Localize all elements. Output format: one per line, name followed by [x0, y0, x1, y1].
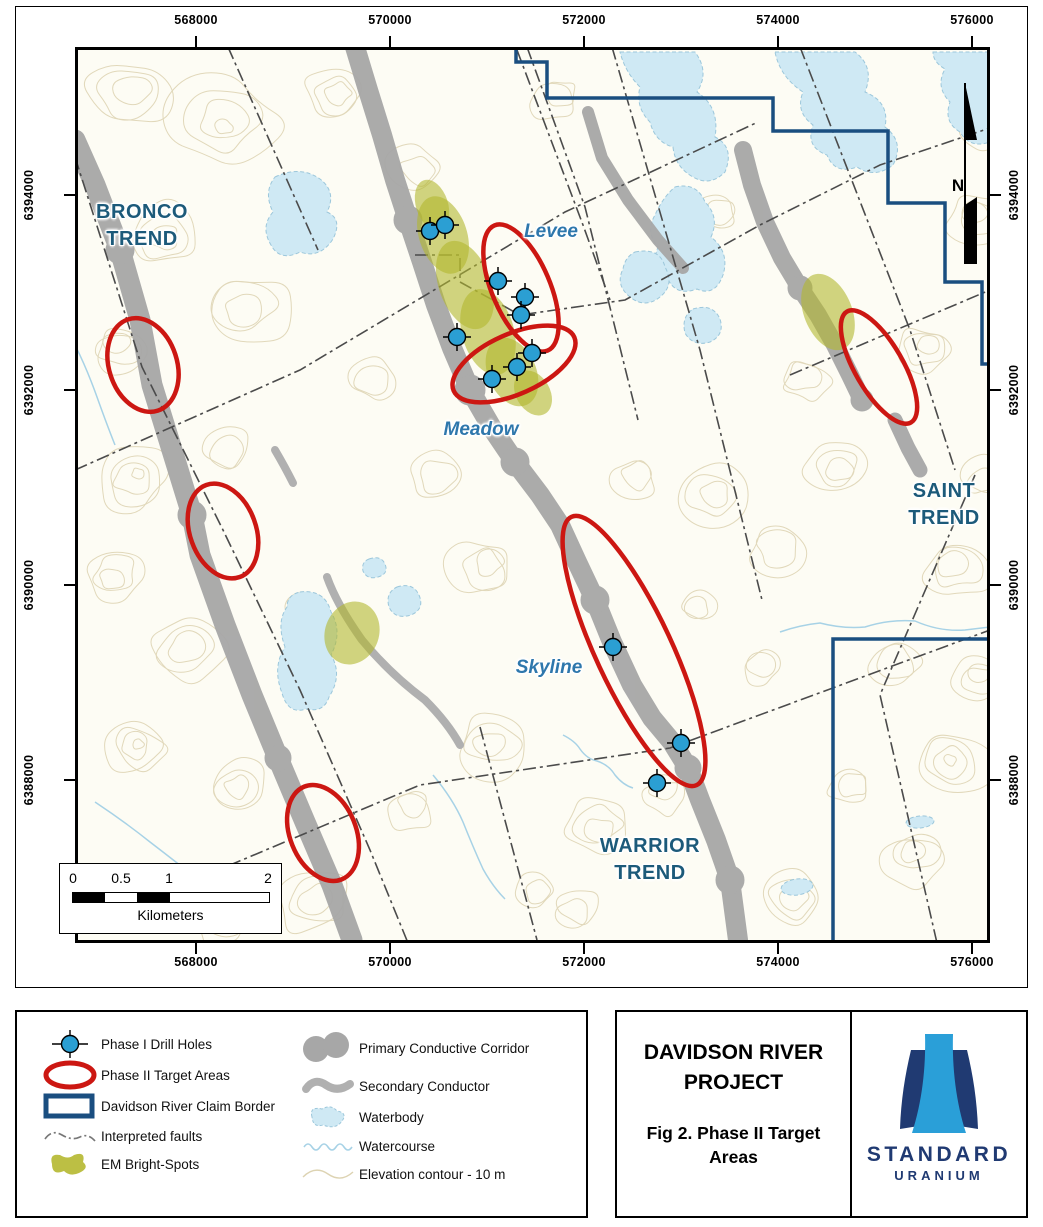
claim-border-icon	[39, 1091, 101, 1121]
skyline-label: Skyline	[516, 657, 583, 679]
axis-tick	[583, 943, 585, 954]
elevation-contour-icon	[297, 1162, 359, 1186]
legend-item: Secondary Conductor	[297, 1070, 490, 1102]
axis-tick	[777, 943, 779, 954]
north-arrow: N	[945, 83, 985, 269]
legend-item: EM Bright-Spots	[39, 1148, 199, 1180]
title-cell: DAVIDSON RIVER PROJECT Fig 2. Phase II T…	[617, 1012, 852, 1216]
figure-title: DAVIDSON RIVER PROJECT	[631, 1038, 836, 1099]
y-axis-label: 6394000	[1007, 170, 1021, 221]
x-axis-label: 574000	[756, 955, 800, 969]
scale-tick-1: 1	[165, 870, 173, 886]
em-bright-spot-icon	[39, 1148, 101, 1180]
primary-corridor-icon	[297, 1028, 359, 1068]
watercourse-icon	[297, 1134, 359, 1158]
bronco-trend-label: BRONCO TREND	[96, 199, 188, 253]
y-axis-label: 6388000	[1007, 755, 1021, 806]
levee-label: Levee	[524, 221, 578, 243]
map-canvas	[75, 47, 990, 943]
x-axis-label: 574000	[756, 13, 800, 27]
y-axis-label: 6388000	[22, 755, 36, 806]
figure-subtitle: Fig 2. Phase II Target Areas	[631, 1121, 836, 1170]
axis-tick	[389, 36, 391, 47]
axis-tick	[990, 584, 1001, 586]
legend-label: Phase II Target Areas	[101, 1068, 230, 1083]
logo-cell: STANDARD URANIUM	[852, 1012, 1026, 1216]
scale-bar-graphic	[72, 892, 270, 903]
axis-tick	[990, 194, 1001, 196]
legend-item: Waterbody	[297, 1101, 424, 1133]
saint-trend-line1: SAINT	[913, 480, 976, 502]
brand-name: STANDARD	[852, 1143, 1026, 1167]
x-axis-label: 576000	[950, 13, 994, 27]
axis-tick	[777, 36, 779, 47]
y-axis-label: 6392000	[22, 365, 36, 416]
drill-hole-icon	[39, 1028, 101, 1060]
scale-bar: 0 0.5 1 2 Kilometers	[59, 863, 282, 934]
target-ellipse-icon	[39, 1059, 101, 1091]
fault-line-icon	[39, 1123, 101, 1149]
x-axis-label: 572000	[562, 13, 606, 27]
legend-label: Primary Conductive Corridor	[359, 1041, 529, 1056]
x-axis-label: 570000	[368, 13, 412, 27]
saint-trend-label: SAINT TREND	[908, 478, 979, 532]
legend-label: Secondary Conductor	[359, 1079, 490, 1094]
y-axis-label: 6390000	[1007, 560, 1021, 611]
axis-tick	[64, 584, 75, 586]
legend-label: Davidson River Claim Border	[101, 1099, 275, 1114]
scale-tick-05: 0.5	[111, 870, 130, 886]
north-letter: N	[952, 176, 964, 195]
y-axis-label: 6390000	[22, 560, 36, 611]
warrior-trend-label: WARRIOR TREND	[600, 833, 700, 887]
y-axis-label: 6392000	[1007, 365, 1021, 416]
waterbody-icon	[297, 1101, 359, 1133]
north-arrow-head	[965, 83, 977, 140]
x-axis-label: 568000	[174, 955, 218, 969]
saint-trend-line2: TREND	[908, 507, 979, 529]
legend-label: EM Bright-Spots	[101, 1157, 199, 1172]
x-axis-label: 570000	[368, 955, 412, 969]
x-axis-label: 568000	[174, 13, 218, 27]
standard-uranium-logo-icon	[864, 1030, 1014, 1134]
legend-label: Phase I Drill Holes	[101, 1037, 212, 1052]
scale-tick-0: 0	[69, 870, 77, 886]
legend-label: Watercourse	[359, 1139, 435, 1154]
axis-tick	[195, 943, 197, 954]
meadow-label: Meadow	[444, 419, 519, 441]
legend-label: Elevation contour - 10 m	[359, 1167, 505, 1182]
secondary-conductor-icon	[297, 1071, 359, 1101]
axis-tick	[971, 36, 973, 47]
legend-label: Interpreted faults	[101, 1129, 202, 1144]
scale-unit: Kilometers	[60, 907, 281, 923]
bronco-trend-line1: BRONCO	[96, 201, 188, 223]
scale-tick-2: 2	[264, 870, 272, 886]
axis-tick	[389, 943, 391, 954]
bronco-trend-line2: TREND	[106, 228, 177, 250]
x-axis-label: 572000	[562, 955, 606, 969]
brand-subname: URANIUM	[852, 1168, 1026, 1183]
title-block: DAVIDSON RIVER PROJECT Fig 2. Phase II T…	[615, 1010, 1028, 1218]
legend-item: Phase II Target Areas	[39, 1059, 230, 1091]
legend-item: Davidson River Claim Border	[39, 1090, 275, 1122]
axis-tick	[64, 194, 75, 196]
axis-tick	[971, 943, 973, 954]
north-arrow-tail	[965, 197, 977, 264]
legend-item: Elevation contour - 10 m	[297, 1158, 505, 1190]
axis-tick	[64, 779, 75, 781]
axis-tick	[583, 36, 585, 47]
axis-tick	[195, 36, 197, 47]
legend-item: Primary Conductive Corridor	[297, 1032, 529, 1064]
legend-label: Waterbody	[359, 1110, 424, 1125]
legend-item: Phase I Drill Holes	[39, 1028, 212, 1060]
y-axis-label: 6394000	[22, 170, 36, 221]
axis-tick	[64, 389, 75, 391]
figure-page: 568000 570000 572000 574000 576000 56800…	[0, 0, 1043, 1227]
axis-tick	[990, 389, 1001, 391]
warrior-trend-line2: TREND	[614, 862, 685, 884]
axis-tick	[990, 779, 1001, 781]
warrior-trend-line1: WARRIOR	[600, 835, 700, 857]
legend-box: Phase I Drill Holes Phase II Target Area…	[15, 1010, 588, 1218]
x-axis-label: 576000	[950, 955, 994, 969]
